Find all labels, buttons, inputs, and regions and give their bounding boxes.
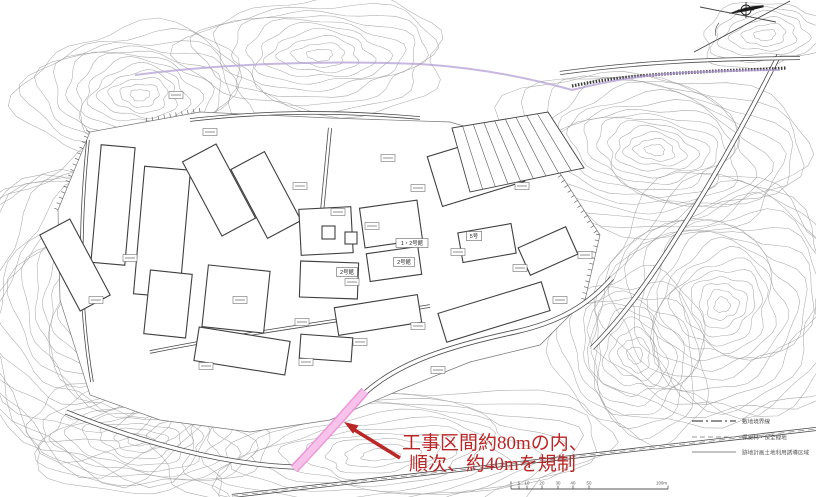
building: [299, 334, 353, 362]
contour-line: [608, 191, 816, 419]
building: [345, 232, 357, 244]
scale-tick-label: 30: [556, 481, 561, 486]
wall-tick: [73, 164, 77, 166]
wall-tick: [79, 147, 83, 149]
scale-tick-label: 10: [525, 481, 530, 486]
contour-line: [623, 209, 813, 390]
contour-line: [726, 15, 797, 55]
legend-label-2: 保安林・保全緑地: [742, 434, 787, 442]
wall-tick: [84, 136, 88, 138]
contour-line: [602, 323, 667, 391]
legend-label-3: 跡地計画土地利用誘導区域: [742, 449, 810, 457]
wall-tick: [146, 118, 147, 122]
contour-line: [740, 22, 787, 48]
contour-line: [711, 294, 732, 314]
contour-line: [130, 90, 149, 101]
contour-line: [574, 175, 816, 454]
road-casing: [592, 55, 779, 348]
building: [322, 226, 335, 239]
legend-label-1: 敷地境界線: [742, 418, 770, 426]
site-plan-svg: 工事区間約80mの内、 順次、約40mを規制 敷地境界線 保安林・保全緑地 跡地…: [0, 0, 816, 497]
contour-line: [263, 28, 376, 77]
contour-line: [684, 266, 765, 344]
wall-tick: [199, 108, 200, 112]
contour-line: [276, 35, 359, 73]
scale-tick-label: 40: [571, 481, 576, 486]
contour-line: [643, 143, 665, 157]
road-surface: [592, 55, 779, 348]
site-plan-drawing: 工事区間約80mの内、 順次、約40mを規制 敷地境界線 保安林・保全緑地 跡地…: [0, 0, 816, 497]
contour-line: [753, 29, 776, 42]
contour-line: [170, 0, 442, 118]
contour-line: [621, 128, 690, 168]
contour-line: [120, 84, 159, 107]
contour-line: [693, 274, 755, 334]
wall-tick: [170, 113, 171, 117]
annotation-text-line1: 工事区間約80mの内、: [402, 432, 588, 454]
contour-line: [614, 122, 703, 176]
wall-tick: [75, 158, 79, 160]
wall-tick: [187, 110, 188, 114]
wall-tick: [152, 117, 153, 121]
legend: 敷地境界線 保安林・保全緑地 跡地計画土地利用誘導区域: [692, 418, 810, 457]
contour-line: [604, 118, 712, 184]
contour-line: [631, 136, 676, 163]
annotation-text-line2: 順次、約40mを規制: [409, 453, 576, 475]
wall-tick: [70, 169, 74, 171]
building-label: 5号: [470, 233, 479, 240]
building-label: 2号館: [397, 258, 411, 266]
contour-line: [614, 334, 656, 378]
scale-tick-label: 50: [587, 481, 592, 486]
wall-tick: [61, 192, 65, 194]
contour-line: [96, 70, 178, 119]
contour-line: [306, 50, 333, 62]
contour-line: [231, 16, 415, 98]
contour-line: [619, 199, 816, 399]
building: [144, 270, 192, 338]
scale-tick-label: 20: [540, 481, 545, 486]
building-label: 2号館: [340, 268, 354, 276]
wall-tick: [57, 203, 61, 205]
wall-tick: [54, 208, 58, 210]
scale-tick-label: 0: [510, 481, 513, 486]
annotation: 工事区間約80mの内、 順次、約40mを規制: [344, 422, 588, 475]
wall-tick: [59, 197, 63, 199]
wall-tick: [77, 153, 81, 155]
wall-tick: [164, 115, 165, 119]
contour-line: [617, 195, 816, 409]
site-boundary-purple-line: [135, 62, 780, 90]
wall-tick: [68, 175, 72, 177]
scale-end-label: 100m: [656, 481, 667, 486]
contour-line: [632, 224, 800, 387]
building-label: 1・2号館: [401, 239, 423, 247]
wall-tick: [182, 111, 183, 115]
